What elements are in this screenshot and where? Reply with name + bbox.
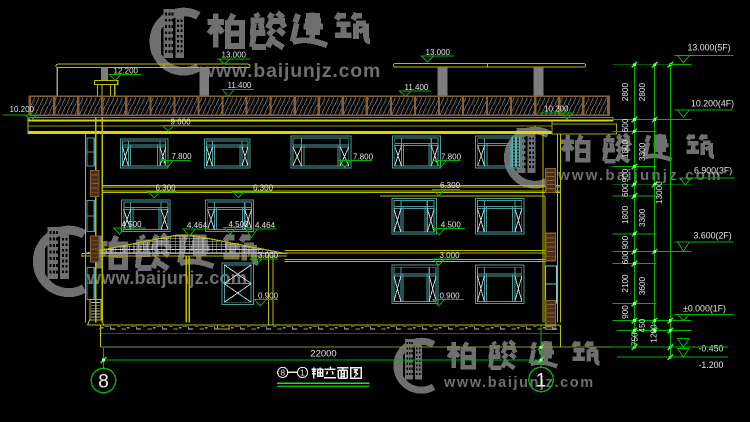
svg-text:1: 1: [536, 371, 547, 392]
svg-text:3.600(2F): 3.600(2F): [694, 231, 732, 241]
svg-text:900: 900: [621, 235, 630, 249]
svg-text:2100: 2100: [621, 274, 630, 293]
svg-text:2800: 2800: [638, 83, 647, 102]
svg-text:3600: 3600: [638, 276, 647, 295]
svg-text:450: 450: [638, 318, 647, 332]
svg-text:900: 900: [621, 305, 630, 319]
svg-text:7.800: 7.800: [172, 152, 193, 161]
svg-text:1: 1: [300, 368, 305, 378]
svg-text:6.300: 6.300: [253, 184, 274, 193]
svg-text:13.000: 13.000: [222, 51, 247, 60]
svg-text:6.900(3F): 6.900(3F): [694, 166, 732, 176]
svg-text:1200: 1200: [649, 324, 658, 343]
svg-text:1800: 1800: [621, 139, 630, 158]
svg-text:6.300: 6.300: [440, 181, 461, 190]
svg-text:8: 8: [98, 372, 109, 393]
svg-text:2800: 2800: [621, 83, 630, 102]
svg-text:750: 750: [631, 332, 640, 346]
svg-text:600: 600: [621, 118, 630, 132]
svg-text:-0.450: -0.450: [699, 343, 724, 353]
svg-text:13000: 13000: [655, 181, 664, 204]
svg-text:±0.000(1F): ±0.000(1F): [683, 304, 726, 314]
svg-text:www.baijunjz.com: www.baijunjz.com: [199, 60, 381, 82]
svg-text:www.baijunjz.com: www.baijunjz.com: [443, 375, 595, 391]
svg-text:900: 900: [621, 168, 630, 182]
svg-text:3300: 3300: [638, 208, 647, 227]
svg-text:12.200: 12.200: [114, 66, 139, 75]
svg-text:600: 600: [621, 183, 630, 197]
svg-text:3300: 3300: [638, 142, 647, 161]
svg-text:11.400: 11.400: [405, 83, 429, 92]
svg-text:8: 8: [280, 368, 285, 378]
svg-text:-1.200: -1.200: [699, 360, 724, 370]
svg-text:600: 600: [621, 250, 630, 264]
svg-text:10.200: 10.200: [10, 105, 35, 114]
svg-text:22000: 22000: [310, 349, 336, 360]
svg-text:www.baijunjz.com: www.baijunjz.com: [86, 268, 247, 288]
svg-text:13.000(5F): 13.000(5F): [688, 43, 731, 53]
svg-text:1800: 1800: [621, 205, 630, 224]
svg-text:10.200(4F): 10.200(4F): [691, 99, 734, 109]
svg-text:10.200: 10.200: [544, 105, 569, 114]
svg-text:13.000: 13.000: [426, 48, 451, 57]
svg-text:11.400: 11.400: [228, 81, 252, 90]
svg-text:6.300: 6.300: [156, 184, 177, 193]
